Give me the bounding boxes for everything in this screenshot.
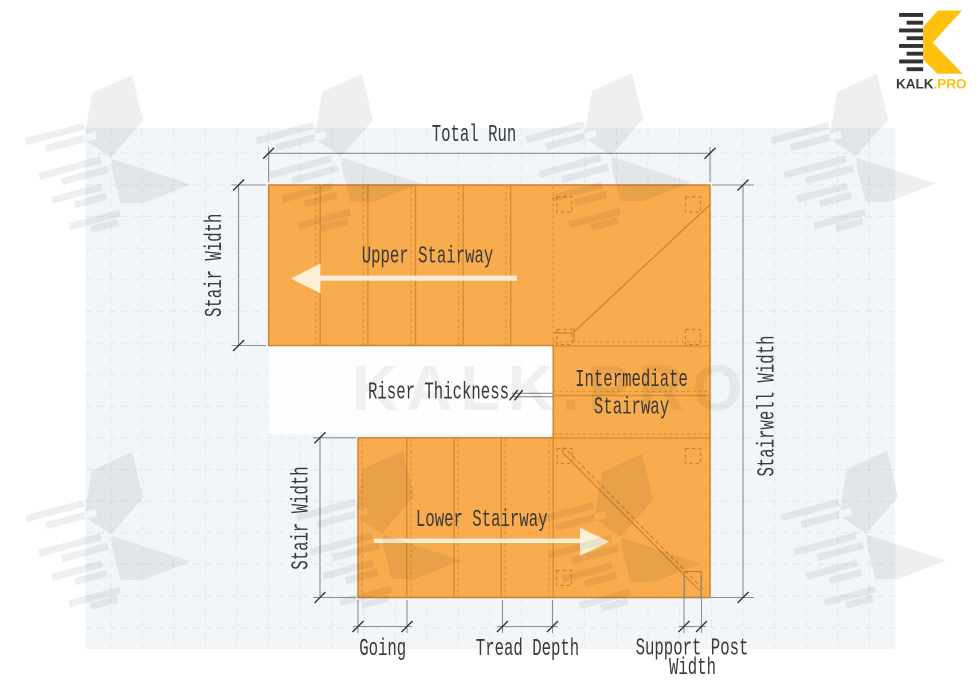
svg-text:KALK.PRO: KALK.PRO — [352, 352, 750, 424]
svg-text:Tread Depth: Tread Depth — [476, 636, 579, 663]
svg-text:Stairwell Width: Stairwell Width — [754, 336, 781, 477]
svg-text:Lower Stairway: Lower Stairway — [416, 507, 548, 534]
svg-text:Total Run: Total Run — [432, 122, 517, 149]
svg-text:Upper Stairway: Upper Stairway — [362, 243, 494, 270]
svg-text:Going: Going — [359, 636, 406, 663]
svg-text:Stair Width: Stair Width — [202, 214, 229, 317]
svg-text:Width: Width — [669, 655, 716, 682]
svg-text:KALK.PRO: KALK.PRO — [896, 77, 967, 92]
